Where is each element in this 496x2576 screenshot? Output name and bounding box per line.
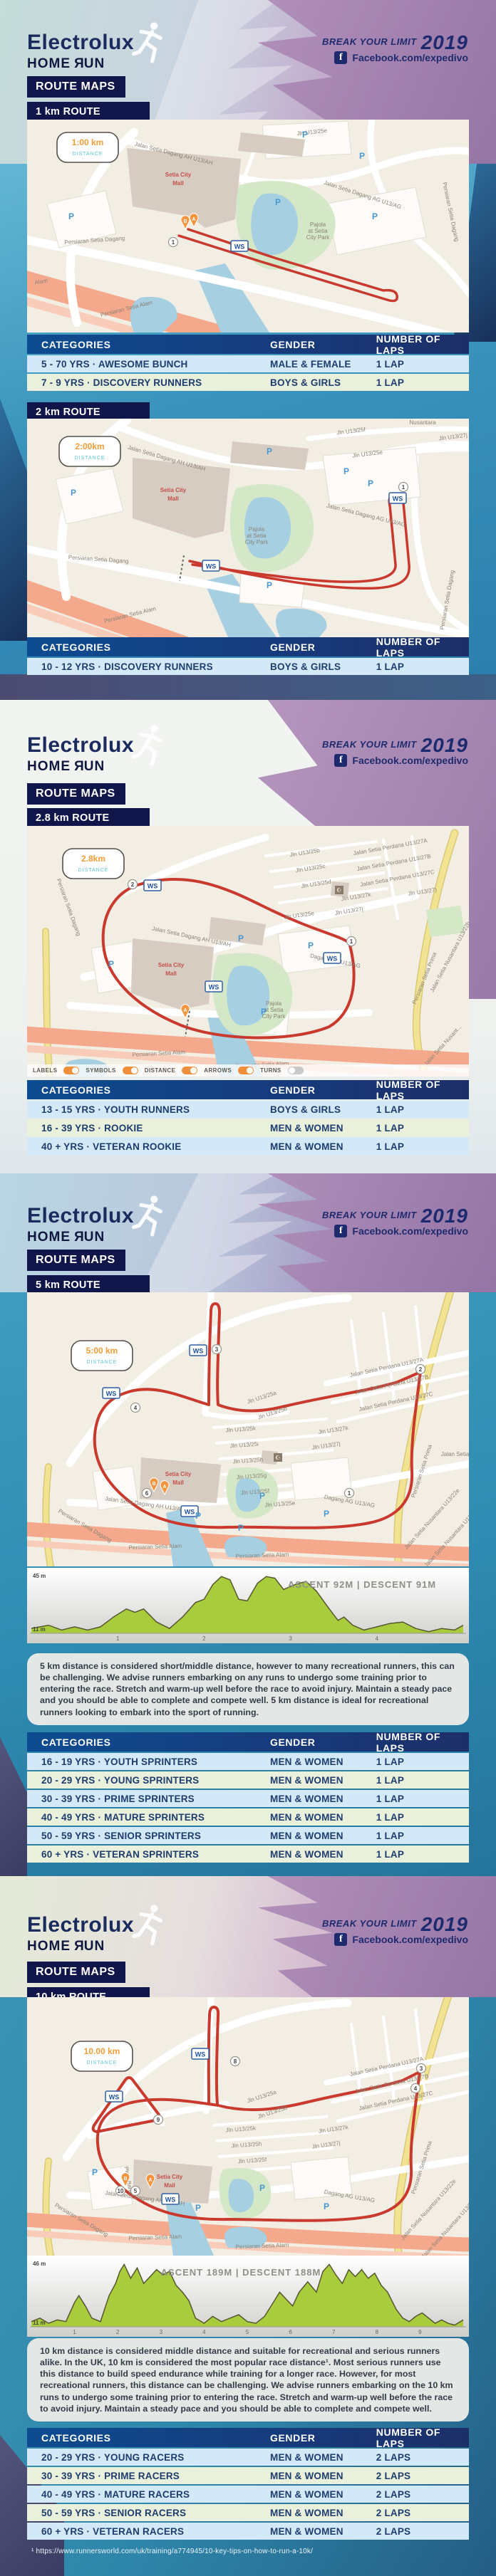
category-cell: CATEGORIES [27, 642, 270, 653]
map-label: Mall [172, 180, 184, 187]
x-tick-label: 9 [418, 2329, 422, 2335]
category-cell: 16 - 19 YRS · YOUTH SPRINTERS [27, 1756, 270, 1767]
map-label: City Park [306, 234, 330, 241]
electrolux-logo: Electrolux HOMERUN [27, 733, 134, 775]
category-cell: 60 + YRS · VETERAN SPRINTERS [27, 1849, 270, 1860]
gender-cell: MEN & WOMEN [270, 1756, 376, 1767]
gender-cell: GENDER [270, 1084, 376, 1096]
parking-icon: P [261, 1007, 267, 1017]
parking-icon: P [275, 197, 281, 207]
pin-letter: B [123, 2177, 127, 2182]
parking-icon: P [302, 130, 308, 140]
ymin-label: 11 m [33, 1626, 46, 1633]
laps-cell: 1 LAP [376, 377, 469, 388]
category-cell: CATEGORIES [27, 2432, 270, 2444]
water-station-marker: WS [202, 560, 219, 571]
parking-icon: P [195, 2203, 201, 2213]
water-station-marker: WS [192, 2048, 209, 2059]
x-tick-label: 3 [289, 1635, 292, 1642]
gender-cell: GENDER [270, 2432, 376, 2444]
route-maps-badge-1: ROUTE MAPS [27, 76, 125, 98]
km-number: 1 [172, 239, 175, 246]
map-label: at Setia [308, 228, 328, 234]
km-marker: 8 [231, 2057, 240, 2066]
brand-name: Electrolux [27, 733, 134, 758]
water-station-marker: WS [324, 953, 341, 963]
x-tick-label: 1 [73, 2329, 76, 2335]
toggle-label: ARROWS [204, 1067, 232, 1074]
facebook-link[interactable]: f Facebook.com/expedivo [334, 51, 468, 64]
parking-icon: P [324, 2201, 329, 2211]
category-cell: 13 - 15 YRS · YOUTH RUNNERS [27, 1104, 270, 1115]
distance-value: 1:00 km [72, 137, 104, 147]
x-tick-label: 2 [116, 2329, 120, 2335]
gender-cell: MEN & WOMEN [270, 1123, 376, 1133]
parking-icon: P [92, 2167, 98, 2177]
km-number: 3 [215, 1346, 219, 1353]
distance-value: 5:00 km [86, 1346, 118, 1356]
category-cell: 5 - 70 YRS · AWESOME BUNCH [27, 359, 270, 370]
gender-cell: GENDER [270, 642, 376, 653]
elevation-chart-5km: 45 m11 m1234ASCENT 92M | DESCENT 91M [27, 1568, 469, 1643]
pin-letter: B [183, 219, 187, 224]
laps-cell: 1 LAP [376, 1794, 469, 1804]
km-marker: 3 [212, 1345, 222, 1354]
gender-cell: MEN & WOMEN [270, 2508, 376, 2518]
panel1-bottom-band [0, 674, 496, 700]
homerun-wordmark: HOMERUN [27, 1230, 134, 1245]
gender-cell: MEN & WOMEN [270, 2471, 376, 2481]
distance-label: DISTANCE [78, 868, 109, 873]
ws-text: WS [206, 563, 217, 570]
km-marker: 4 [131, 1403, 140, 1413]
brand-name: Electrolux [27, 1204, 134, 1228]
gender-cell: BOYS & GIRLS [270, 1104, 376, 1115]
laps-cell: NUMBER OF LAPS [376, 2426, 469, 2449]
gender-cell: GENDER [270, 339, 376, 350]
km-marker: 2 [416, 1365, 425, 1374]
table-row: 16 - 39 YRS · ROOKIEMEN & WOMEN1 LAP [27, 1119, 469, 1136]
map-label: Nusantara [410, 419, 436, 426]
water-station-marker: WS [205, 981, 222, 992]
gender-cell: MEN & WOMEN [270, 1794, 376, 1804]
facebook-icon: f [334, 1933, 347, 1946]
laps-cell: 1 LAP [376, 1775, 469, 1786]
runner-icon [132, 1902, 169, 1948]
lot-shape [291, 1457, 352, 1500]
electrolux-logo: Electrolux HOMERUN [27, 31, 134, 72]
toggle-distance[interactable] [182, 1067, 197, 1074]
category-cell: 50 - 59 YRS · SENIOR RACERS [27, 2508, 270, 2518]
ws-text: WS [185, 1509, 195, 1516]
toggle-label: SYMBOLS [86, 1067, 115, 1074]
gender-cell: MALE & FEMALE [270, 359, 376, 370]
water-station-marker: WS [190, 1345, 207, 1356]
km-number: 4 [134, 1405, 138, 1411]
laps-cell: 2 LAPS [376, 2526, 469, 2537]
km-number: 2 [419, 1366, 423, 1373]
ws-text: WS [327, 955, 338, 963]
map-label: Pajola [266, 1000, 282, 1007]
laps-cell: NUMBER OF LAPS [376, 333, 469, 356]
laps-cell: NUMBER OF LAPS [376, 636, 469, 659]
ws-text: WS [193, 1348, 204, 1355]
category-table-2km: CATEGORIESGENDERNUMBER OF LAPS10 - 12 YR… [27, 637, 469, 676]
table-header-row: CATEGORIESGENDERNUMBER OF LAPS [27, 1732, 469, 1752]
km-number: 2 [131, 881, 135, 888]
ws-text: WS [195, 2051, 206, 2058]
parking-icon: P [259, 1491, 265, 1501]
table-header-row: CATEGORIESGENDERNUMBER OF LAPS [27, 2428, 469, 2447]
parking-icon: P [71, 488, 76, 498]
gender-cell: GENDER [270, 1737, 376, 1748]
route-map-5km: Jln U13/25kJln U13/25iJln U13/25hJln U13… [27, 1292, 469, 1566]
homerun-wordmark: HOMERUN [27, 1939, 134, 1954]
panel-header-4: Electrolux HOMERUN BREAK YOUR LIMIT2019 … [0, 1876, 496, 1976]
runner-icon [132, 20, 169, 66]
distance-label: DISTANCE [73, 152, 103, 157]
ymax-label: 45 m [33, 1573, 46, 1579]
distance-badge: 2.8kmDISTANCE [63, 849, 124, 879]
map-display-toggles: LABELSSYMBOLSDISTANCEARROWSTURNS [27, 1064, 469, 1077]
km-marker: 1 [347, 937, 356, 946]
map-label: City Park [245, 539, 269, 545]
ws-text: WS [106, 1391, 117, 1398]
lot-shape [278, 926, 355, 973]
runner-icon [132, 1193, 169, 1239]
distance-badge: 1:00 kmDISTANCE [57, 132, 118, 162]
map-label: Setia City [165, 1471, 192, 1477]
distance-label: DISTANCE [87, 2061, 118, 2065]
gender-cell: BOYS & GIRLS [270, 661, 376, 672]
pin-letter: A [183, 1008, 187, 1013]
parking-icon: P [68, 211, 74, 221]
km-number: 8 [234, 2058, 237, 2065]
infographic-page: Electrolux HOMERUN BREAK YOUR LIMIT2019 … [0, 0, 496, 2576]
table-row: 5 - 70 YRS · AWESOME BUNCHMALE & FEMALE1… [27, 355, 469, 372]
parking-icon: P [372, 211, 378, 221]
route-badge-5km: 5 km ROUTE [27, 1275, 150, 1294]
toggle-turns[interactable] [288, 1067, 304, 1074]
toggle-symbols[interactable] [123, 1067, 138, 1074]
ws-text: WS [393, 496, 403, 503]
water-station-marker: WS [162, 2194, 179, 2204]
parking-icon: P [108, 959, 114, 969]
km-marker: 5 [131, 2187, 140, 2196]
table-row: 20 - 29 YRS · YOUNG RACERSMEN & WOMEN2 L… [27, 2449, 469, 2466]
facebook-icon: f [334, 754, 347, 767]
category-cell: 40 - 49 YRS · MATURE RACERS [27, 2489, 270, 2500]
x-tick-label: 4 [376, 1635, 379, 1642]
laps-cell: 1 LAP [376, 1141, 469, 1152]
km-number: 1 [402, 484, 405, 491]
category-cell: 40 + YRS · VETERAN ROOKIE [27, 1141, 270, 1152]
x-tick-label: 1 [116, 1635, 120, 1642]
water-station-marker: WS [231, 241, 248, 251]
table-row: 50 - 59 YRS · SENIOR RACERSMEN & WOMEN2 … [27, 2504, 469, 2521]
category-table-1km: CATEGORIESGENDERNUMBER OF LAPS5 - 70 YRS… [27, 335, 469, 392]
category-cell: 20 - 29 YRS · YOUNG SPRINTERS [27, 1775, 270, 1786]
distance-value: 2:00km [75, 441, 104, 451]
distance-badge: 5:00 kmDISTANCE [71, 1341, 133, 1371]
category-cell: 50 - 59 YRS · SENIOR SPRINTERS [27, 1831, 270, 1841]
distance-badge: 10.00 kmDISTANCE [71, 2041, 133, 2071]
laps-cell: 1 LAP [376, 1812, 469, 1823]
table-header-row: CATEGORIESGENDERNUMBER OF LAPS [27, 335, 469, 354]
facebook-icon: f [334, 1225, 347, 1237]
ws-text: WS [165, 2197, 176, 2204]
laps-cell: 2 LAPS [376, 2452, 469, 2463]
x-tick-label: 3 [160, 2329, 163, 2335]
ymin-label: 11 m [33, 2320, 46, 2326]
distance-value: 10.00 km [84, 2046, 120, 2056]
pin-letter: A [192, 217, 195, 222]
route-badge-1km: 1 km ROUTE [27, 102, 150, 121]
toggle-label: LABELS [33, 1067, 57, 1074]
distance-value: 2.8km [81, 854, 105, 864]
toggle-label: TURNS [260, 1067, 281, 1074]
facebook-link[interactable]: f Facebook.com/expedivo [334, 1933, 468, 1946]
water-station-marker: WS [389, 493, 406, 503]
table-row: 30 - 39 YRS · PRIME RACERSMEN & WOMEN2 L… [27, 2467, 469, 2484]
category-cell: CATEGORIES [27, 1737, 270, 1748]
table-row: 40 - 49 YRS · MATURE SPRINTERSMEN & WOME… [27, 1808, 469, 1826]
x-tick-label: 2 [202, 1635, 206, 1642]
category-cell: 20 - 29 YRS · YOUNG RACERS [27, 2452, 270, 2463]
laps-cell: 1 LAP [376, 1123, 469, 1133]
parking-icon: P [324, 1509, 329, 1519]
laps-cell: 2 LAPS [376, 2508, 469, 2518]
laps-cell: 1 LAP [376, 661, 469, 672]
gender-cell: MEN & WOMEN [270, 2452, 376, 2463]
km-marker: 1 [399, 483, 408, 492]
route-maps-badge-3: ROUTE MAPS [27, 1250, 125, 1271]
ws-text: WS [234, 244, 245, 251]
parking-icon: P [195, 1511, 201, 1521]
category-cell: 10 - 12 YRS · DISCOVERY RUNNERS [27, 661, 270, 672]
map-label: Pajola [249, 526, 265, 533]
category-table-2-8km: CATEGORIESGENDERNUMBER OF LAPS13 - 15 YR… [27, 1080, 469, 1156]
distance-label: DISTANCE [75, 456, 105, 461]
footnote-source-url: ¹ https://www.runnersworld.com/uk/traini… [31, 2548, 313, 2555]
x-tick-label: 4 [202, 2329, 206, 2335]
route-description-5km: 5 km distance is considered short/middle… [27, 1653, 469, 1725]
toggle-arrows[interactable] [238, 1067, 254, 1074]
km-number: 1 [348, 1490, 351, 1497]
table-row: 40 + YRS · VETERAN ROOKIEMEN & WOMEN1 LA… [27, 1138, 469, 1155]
electrolux-logo: Electrolux HOMERUN [27, 1913, 134, 1954]
x-tick-label: 8 [376, 2329, 379, 2335]
map-label: Jalan Setia D... [441, 1451, 469, 1457]
km-marker: 4 [411, 2084, 420, 2093]
map-label: Mall [164, 2182, 175, 2189]
parking-icon: P [343, 466, 349, 476]
parking-icon: P [259, 2183, 265, 2193]
map-label: Setia City [160, 487, 187, 493]
route-badge-2-8km: 2.8 km ROUTE [27, 808, 150, 827]
water-station-marker: WS [103, 1388, 120, 1398]
table-row: 60 + YRS · VETERAN RACERSMEN & WOMEN2 LA… [27, 2523, 469, 2540]
laps-cell: 1 LAP [376, 359, 469, 370]
km-marker: 10 [116, 2187, 125, 2196]
pin-letter: A [148, 2178, 152, 2183]
mosque-icon: ☪ [274, 1453, 282, 1462]
km-number: 3 [420, 2065, 423, 2072]
ascent-descent-label: ASCENT 92M | DESCENT 91M [288, 1579, 436, 1590]
mosque-glyph: ☪ [336, 887, 341, 894]
map-label: Pajola [310, 221, 326, 228]
elevation-chart-10km: 46 m11 m123456789ASCENT 189M | DESCENT 1… [27, 2256, 469, 2337]
electrolux-logo: Electrolux HOMERUN [27, 1204, 134, 1245]
mosque-glyph: ☪ [275, 1455, 280, 1461]
laps-cell: 1 LAP [376, 1756, 469, 1767]
km-number: 5 [134, 2188, 138, 2194]
map-label: at Setia [247, 533, 267, 539]
gender-cell: MEN & WOMEN [270, 1849, 376, 1860]
km-number: 9 [157, 2117, 160, 2123]
route-maps-badge-2: ROUTE MAPS [27, 783, 125, 805]
map-label: Mall [165, 970, 177, 977]
laps-cell: 2 LAPS [376, 2471, 469, 2481]
toggle-labels[interactable] [63, 1067, 79, 1074]
km-marker: 2 [128, 880, 138, 889]
toggle-label: DISTANCE [145, 1067, 176, 1074]
category-cell: 7 - 9 YRS · DISCOVERY RUNNERS [27, 377, 270, 388]
gender-cell: BOYS & GIRLS [270, 377, 376, 388]
pin-letter: B [152, 1482, 155, 1487]
route-description-10km: 10 km distance is considered middle dist… [27, 2338, 469, 2421]
water-station-marker: WS [144, 880, 161, 891]
ymax-label: 46 m [33, 2261, 46, 2267]
km-marker: 6 [143, 1489, 152, 1498]
route-map-2km: NusantaraJln U13/25fJln U13/27jJln U13/2… [27, 419, 469, 637]
water-station-marker: WS [105, 2091, 123, 2102]
homerun-wordmark: HOMERUN [27, 56, 134, 72]
ws-text: WS [148, 883, 158, 890]
pin-letter: A [162, 1485, 166, 1489]
gender-cell: MEN & WOMEN [270, 1141, 376, 1152]
ws-text: WS [209, 984, 219, 991]
km-number: 4 [414, 2085, 418, 2092]
x-tick-label: 6 [289, 2329, 292, 2335]
map-label: Setia City [165, 172, 192, 178]
parking-icon: P [308, 941, 314, 951]
ws-text: WS [109, 2094, 120, 2101]
table-row: 20 - 29 YRS · YOUNG SPRINTERSMEN & WOMEN… [27, 1771, 469, 1789]
category-cell: CATEGORIES [27, 339, 270, 350]
gender-cell: MEN & WOMEN [270, 2489, 376, 2500]
table-row: 10 - 12 YRS · DISCOVERY RUNNERSBOYS & GI… [27, 658, 469, 675]
distance-badge: 2:00kmDISTANCE [59, 436, 120, 466]
map-label: Setia City [157, 2174, 183, 2180]
laps-cell: NUMBER OF LAPS [376, 1079, 469, 1101]
table-row: 7 - 9 YRS · DISCOVERY RUNNERSBOYS & GIRL… [27, 374, 469, 391]
category-cell: 30 - 39 YRS · PRIME RACERS [27, 2471, 270, 2481]
category-cell: 30 - 39 YRS · PRIME SPRINTERS [27, 1794, 270, 1804]
route-maps-badge-4: ROUTE MAPS [27, 1962, 125, 1983]
x-tick-label: 7 [332, 2329, 336, 2335]
laps-cell: NUMBER OF LAPS [376, 1731, 469, 1754]
map-label: Setia City [158, 962, 185, 968]
gender-cell: MEN & WOMEN [270, 1775, 376, 1786]
km-marker: 1 [345, 1489, 354, 1498]
category-cell: 16 - 39 YRS · ROOKIE [27, 1123, 270, 1133]
table-row: 60 + YRS · VETERAN SPRINTERSMEN & WOMEN1… [27, 1845, 469, 1863]
km-number: 10 [118, 2188, 124, 2194]
table-row: 16 - 19 YRS · YOUTH SPRINTERSMEN & WOMEN… [27, 1753, 469, 1770]
parking-icon: P [368, 478, 373, 488]
route-map-1km: Jalan Setia Dagang AH U13/AHJln U13/25eS… [27, 120, 469, 333]
route-map-2-8km: Jln U13/25bJln U13/25cJln U13/25dJln U13… [27, 826, 469, 1077]
distance-label: DISTANCE [87, 1360, 118, 1365]
laps-cell: 2 LAPS [376, 2489, 469, 2500]
x-tick-label: 5 [246, 2329, 249, 2335]
table-header-row: CATEGORIESGENDERNUMBER OF LAPS [27, 1080, 469, 1099]
km-marker: 3 [417, 2064, 426, 2073]
laps-cell: 1 LAP [376, 1831, 469, 1841]
table-row: 30 - 39 YRS · PRIME SPRINTERSMEN & WOMEN… [27, 1790, 469, 1807]
table-row: 13 - 15 YRS · YOUTH RUNNERSBOYS & GIRLS1… [27, 1101, 469, 1118]
laps-cell: 1 LAP [376, 1849, 469, 1860]
facebook-icon: f [334, 51, 347, 64]
homerun-wordmark: HOMERUN [27, 759, 134, 775]
category-cell: 60 + YRS · VETERAN RACERS [27, 2526, 270, 2537]
km-marker: 1 [169, 238, 178, 247]
runner-icon [132, 723, 169, 768]
gender-cell: MEN & WOMEN [270, 1831, 376, 1841]
parking-icon: P [238, 933, 244, 943]
km-number: 1 [350, 938, 353, 945]
parking-icon: P [267, 446, 272, 456]
mosque-icon: ☪ [335, 886, 343, 894]
parking-icon: P [267, 580, 272, 590]
table-header-row: CATEGORIESGENDERNUMBER OF LAPS [27, 637, 469, 656]
brand-name: Electrolux [27, 31, 134, 55]
category-cell: CATEGORIES [27, 1084, 270, 1096]
parking-icon: P [238, 1523, 244, 1533]
facebook-link[interactable]: f Facebook.com/expedivo [334, 754, 468, 767]
gender-cell: MEN & WOMEN [270, 2526, 376, 2537]
category-table-10km: CATEGORIESGENDERNUMBER OF LAPS20 - 29 YR… [27, 2428, 469, 2541]
brand-name: Electrolux [27, 1913, 134, 1937]
gender-cell: MEN & WOMEN [270, 1812, 376, 1823]
category-cell: 40 - 49 YRS · MATURE SPRINTERS [27, 1812, 270, 1823]
map-label: Mall [172, 1480, 184, 1486]
km-number: 6 [145, 1490, 149, 1497]
map-label: at Setia [264, 1007, 284, 1013]
parking-icon: P [359, 151, 365, 161]
facebook-link[interactable]: f Facebook.com/expedivo [334, 1225, 468, 1237]
route-map-10km: Jln U13/25aJln U13/25bJln U13/25kJln U13… [27, 1997, 469, 2256]
category-table-5km: CATEGORIESGENDERNUMBER OF LAPS16 - 19 YR… [27, 1732, 469, 1864]
ascent-descent-label: ASCENT 189M | DESCENT 188M [161, 2267, 321, 2278]
table-row: 40 - 49 YRS · MATURE RACERSMEN & WOMEN2 … [27, 2486, 469, 2503]
laps-cell: 1 LAP [376, 1104, 469, 1115]
table-row: 50 - 59 YRS · SENIOR SPRINTERSMEN & WOME… [27, 1827, 469, 1844]
map-label: Mall [167, 496, 179, 502]
km-marker: 9 [154, 2115, 163, 2125]
